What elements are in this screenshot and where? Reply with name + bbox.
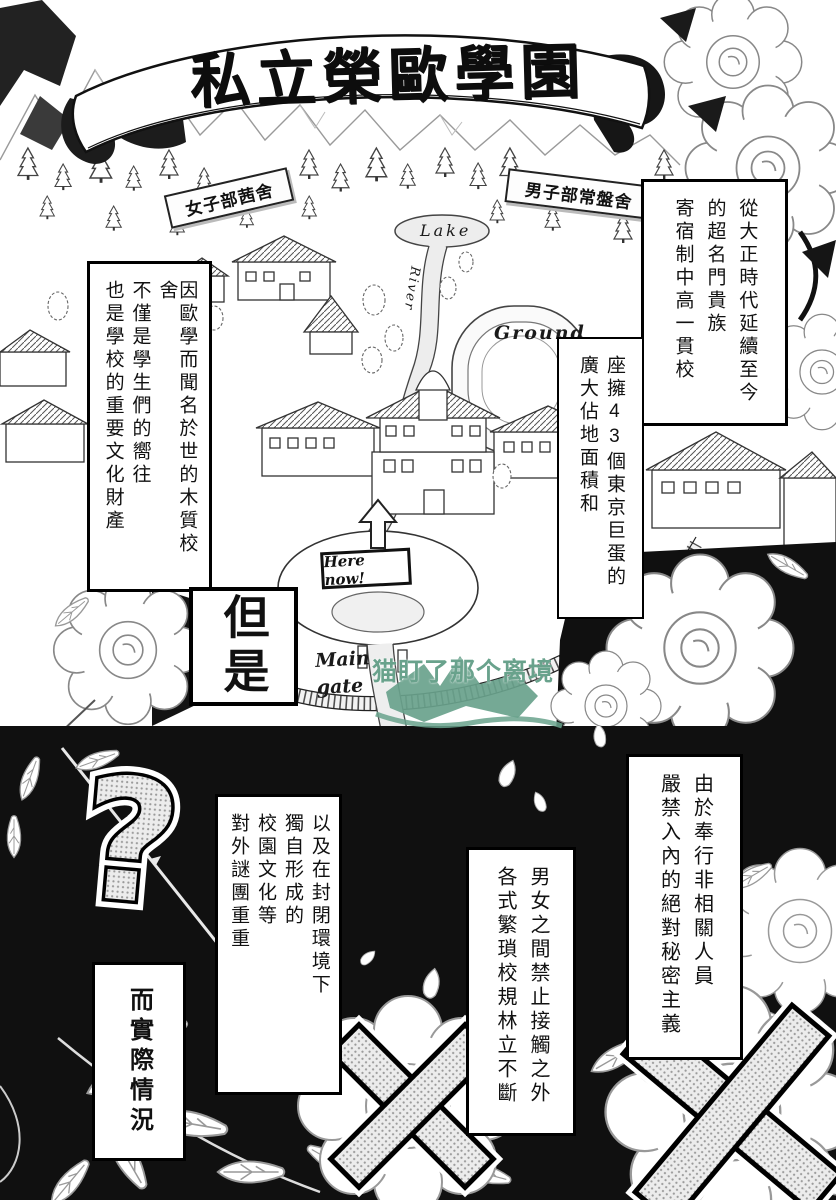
caption-line: 獨自形成的: [282, 813, 302, 1076]
caption-line: 也是學校的重要文化財產: [103, 280, 123, 573]
caption-line: 各式繁瑣校規林立不斷: [494, 866, 515, 1117]
here-now-sign: Here now!: [320, 548, 412, 590]
caption-line: 因歐學而聞名於世的木質校舍: [157, 280, 197, 573]
page-title: 私立榮歐學園: [147, 22, 629, 121]
caption-transition: 但是: [189, 587, 298, 706]
caption-line: 廣大佔地面積和: [577, 355, 597, 601]
question-mark-icon: ? ?: [73, 740, 187, 944]
corner-rose-left: [51, 576, 206, 730]
caption-line: 座擁43個東京巨蛋的: [604, 355, 624, 601]
west-buildings: [0, 330, 88, 462]
scanlation-watermark: 猫盯了那个离境: [366, 644, 570, 738]
caption-text: 但是: [211, 593, 277, 701]
svg-text:?: ?: [73, 740, 187, 944]
caption-history: 從大正時代延續至今 的超名門貴族 寄宿制中高一貫校: [641, 179, 788, 426]
watermark-text: 猫盯了那个离境: [372, 652, 568, 688]
caption-text: 而實際情況: [122, 987, 157, 1137]
caption-line: 從大正時代延續至今: [736, 198, 756, 407]
caption-line: 不僅是學生們的嚮往: [130, 280, 150, 573]
caption-line: 的超名門貴族: [705, 198, 725, 407]
manga-page: ? ?: [0, 0, 836, 1200]
caption-line: 男女之間禁止接觸之外: [527, 866, 548, 1117]
caption-line: 寄宿制中高一貫校: [673, 198, 693, 407]
caption-line: 嚴禁入內的絕對秘密主義: [658, 773, 679, 1041]
caption-line: 由於奉行非相關人員: [691, 773, 712, 1041]
caption-reality: 而實際情況: [92, 962, 186, 1161]
boys-dorm-building: [646, 432, 836, 550]
caption-line: 校園文化等: [255, 813, 275, 1076]
caption-heritage: 因歐學而聞名於世的木質校舍 不僅是學生們的嚮往 也是學校的重要文化財產: [87, 261, 212, 592]
caption-line: 以及在封閉環境下: [309, 813, 329, 1076]
caption-area: 座擁43個東京巨蛋的 廣大佔地面積和: [557, 337, 644, 619]
caption-culture: 以及在封閉環境下 獨自形成的 校園文化等 對外謎團重重: [215, 794, 342, 1095]
caption-rules: 男女之間禁止接觸之外 各式繁瑣校規林立不斷: [466, 847, 576, 1136]
caption-line: 對外謎團重重: [228, 813, 248, 1076]
lake-label: Lake: [420, 221, 471, 240]
pavilion: [304, 296, 358, 354]
caption-secrecy: 由於奉行非相關人員 嚴禁入內的絕對秘密主義: [626, 754, 743, 1060]
